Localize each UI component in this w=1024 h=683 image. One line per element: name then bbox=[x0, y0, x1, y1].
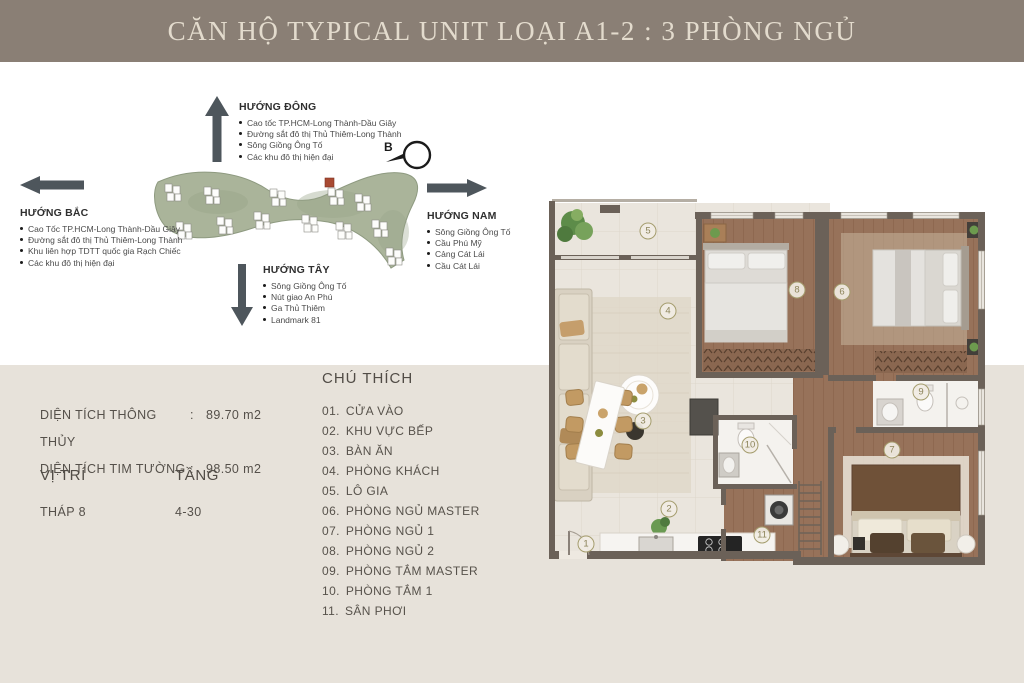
list-item: Sông Giồng Ông Tố bbox=[263, 281, 346, 292]
floor-value: 4-30 bbox=[175, 505, 202, 519]
direction-south: HƯỚNG NAM Sông Giồng Ông Tố Cầu Phú Mỹ C… bbox=[427, 179, 510, 272]
legend-item: 06.PHÒNG NGỦ MASTER bbox=[322, 501, 480, 521]
highlighted-tower bbox=[325, 178, 334, 187]
building-block bbox=[302, 215, 318, 232]
legend-item: 05.LÔ GIA bbox=[322, 481, 480, 501]
legend-item: 01.CỬA VÀO bbox=[322, 401, 480, 421]
legend-item: 03.BÀN ĂN bbox=[322, 441, 480, 461]
building-block bbox=[336, 222, 352, 239]
legend-item: 07.PHÒNG NGỦ 1 bbox=[322, 521, 480, 541]
room-badge-2: 2 bbox=[661, 501, 678, 518]
arrow-right-icon bbox=[427, 179, 487, 197]
direction-west-list: Sông Giồng Ông Tố Nút giao An Phú Ga Thủ… bbox=[263, 281, 346, 326]
title-banner: CĂN HỘ TYPICAL UNIT LOẠI A1-2 : 3 PHÒNG … bbox=[0, 0, 1024, 62]
list-item: Khu liên hợp TDTT quốc gia Rạch Chiếc bbox=[20, 246, 182, 257]
list-item: Nút giao An Phú bbox=[263, 292, 346, 303]
direction-west-title: HƯỚNG TÂY bbox=[263, 264, 346, 276]
legend-item: 02.KHU VỰC BẾP bbox=[322, 421, 480, 441]
direction-north-list: Cao Tốc TP.HCM-Long Thành-Dầu Giây Đường… bbox=[20, 224, 182, 269]
direction-west: HƯỚNG TÂY Sông Giồng Ông Tố Nút giao An … bbox=[231, 264, 346, 326]
list-item: Đường sắt đô thị Thủ Thiêm-Long Thành bbox=[239, 129, 401, 140]
position-value: THÁP 8 bbox=[40, 505, 86, 519]
legend-item: 10.PHÒNG TẮM 1 bbox=[322, 581, 480, 601]
direction-north-title: HƯỚNG BẮC bbox=[20, 207, 182, 219]
floor-plan: 1234567891011 bbox=[543, 193, 1003, 575]
list-item: Cao Tốc TP.HCM-Long Thành-Dầu Giây bbox=[20, 224, 182, 235]
room-badge-6: 6 bbox=[834, 284, 851, 301]
list-item: Các khu đô thị hiện đại bbox=[20, 258, 182, 269]
room-badge-8: 8 bbox=[789, 282, 806, 299]
list-item: Landmark 81 bbox=[263, 315, 346, 326]
arrow-down-icon bbox=[231, 264, 253, 326]
area-label: DIỆN TÍCH THÔNG THỦY bbox=[40, 402, 190, 456]
list-item: Cầu Phú Mỹ bbox=[427, 238, 510, 249]
legend-item: 08.PHÒNG NGỦ 2 bbox=[322, 541, 480, 561]
arrow-up-icon bbox=[205, 96, 229, 162]
direction-south-list: Sông Giồng Ông Tố Cầu Phú Mỹ Cảng Cát Lá… bbox=[427, 227, 510, 272]
area-row: DIỆN TÍCH THÔNG THỦY : 89.70 m2 bbox=[40, 402, 261, 456]
separator: : bbox=[190, 402, 206, 456]
list-item: Ga Thủ Thiêm bbox=[263, 303, 346, 314]
room-badge-layer: 1234567891011 bbox=[543, 193, 1003, 575]
list-item: Sông Giồng Ông Tố bbox=[239, 140, 401, 151]
site-map bbox=[148, 162, 426, 272]
list-item: Cảng Cát Lái bbox=[427, 249, 510, 260]
legend: CHÚ THÍCH 01.CỬA VÀO 02.KHU VỰC BẾP 03.B… bbox=[322, 370, 480, 621]
legend-title: CHÚ THÍCH bbox=[322, 370, 480, 387]
compass-north-label: B bbox=[384, 140, 393, 154]
floor-label: TẦNG bbox=[175, 467, 219, 484]
legend-item: 11.SÂN PHƠI bbox=[322, 601, 480, 621]
direction-east: HƯỚNG ĐÔNG Cao tốc TP.HCM-Long Thành-Dầu… bbox=[205, 96, 401, 163]
room-badge-9: 9 bbox=[913, 384, 930, 401]
room-badge-11: 11 bbox=[754, 527, 771, 544]
room-badge-4: 4 bbox=[660, 303, 677, 320]
room-badge-10: 10 bbox=[742, 437, 759, 454]
room-badge-5: 5 bbox=[640, 223, 657, 240]
direction-north: HƯỚNG BẮC Cao Tốc TP.HCM-Long Thành-Dầu … bbox=[20, 176, 182, 269]
list-item: Cầu Cát Lái bbox=[427, 261, 510, 272]
position-label: VỊ TRÍ bbox=[40, 467, 86, 484]
room-badge-3: 3 bbox=[635, 413, 652, 430]
brochure-page: CĂN HỘ TYPICAL UNIT LOẠI A1-2 : 3 PHÒNG … bbox=[0, 0, 1024, 683]
direction-east-title: HƯỚNG ĐÔNG bbox=[239, 101, 401, 113]
room-badge-1: 1 bbox=[578, 536, 595, 553]
list-item: Sông Giồng Ông Tố bbox=[427, 227, 510, 238]
list-item: Đường sắt đô thị Thủ Thiêm-Long Thành bbox=[20, 235, 182, 246]
list-item: Cao tốc TP.HCM-Long Thành-Dầu Giây bbox=[239, 118, 401, 129]
direction-south-title: HƯỚNG NAM bbox=[427, 210, 510, 222]
direction-east-list: Cao tốc TP.HCM-Long Thành-Dầu Giây Đường… bbox=[239, 118, 401, 163]
arrow-left-icon bbox=[20, 176, 84, 194]
legend-list: 01.CỬA VÀO 02.KHU VỰC BẾP 03.BÀN ĂN 04.P… bbox=[322, 401, 480, 621]
room-badge-7: 7 bbox=[884, 442, 901, 459]
legend-item: 09.PHÒNG TẮM MASTER bbox=[322, 561, 480, 581]
area-value: 89.70 m2 bbox=[206, 402, 261, 456]
legend-item: 04.PHÒNG KHÁCH bbox=[322, 461, 480, 481]
page-title: CĂN HỘ TYPICAL UNIT LOẠI A1-2 : 3 PHÒNG … bbox=[168, 16, 857, 47]
